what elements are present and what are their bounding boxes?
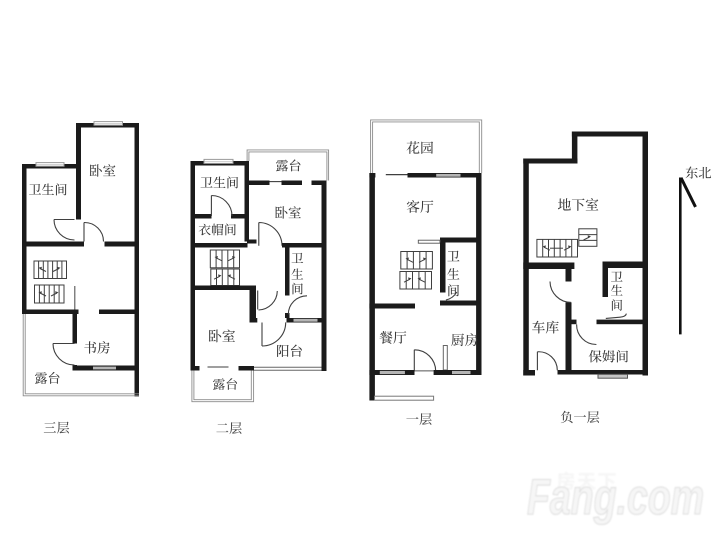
svg-text:Fang.com: Fang.com [527, 470, 704, 525]
